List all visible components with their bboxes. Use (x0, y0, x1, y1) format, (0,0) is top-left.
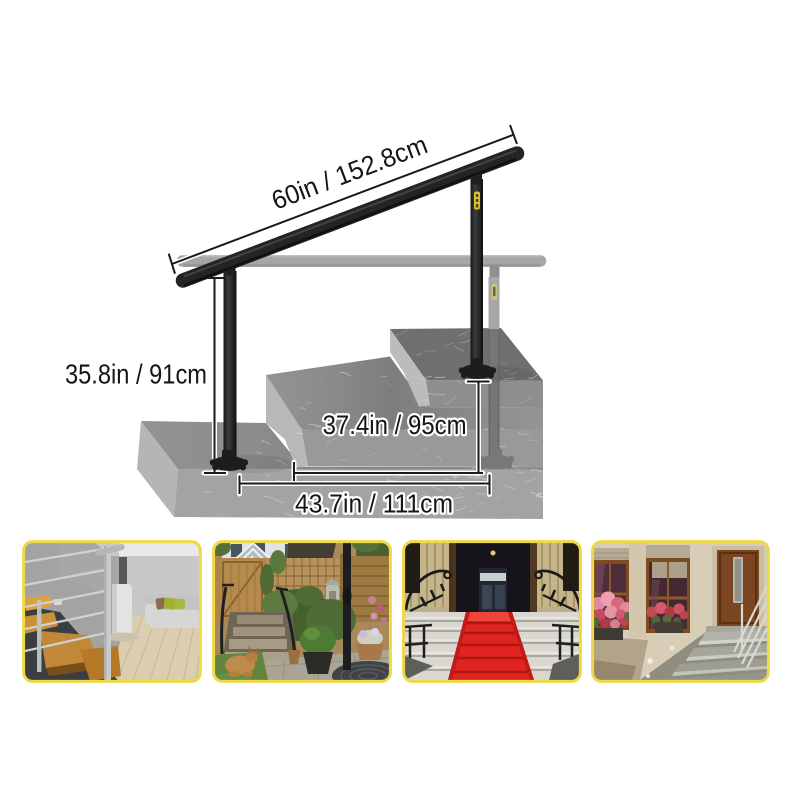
svg-text:35.8in / 91cm: 35.8in / 91cm (65, 359, 207, 390)
svg-text:43.7in / 111cm: 43.7in / 111cm (295, 491, 453, 519)
svg-text:37.4in / 95cm: 37.4in / 95cm (323, 410, 467, 440)
